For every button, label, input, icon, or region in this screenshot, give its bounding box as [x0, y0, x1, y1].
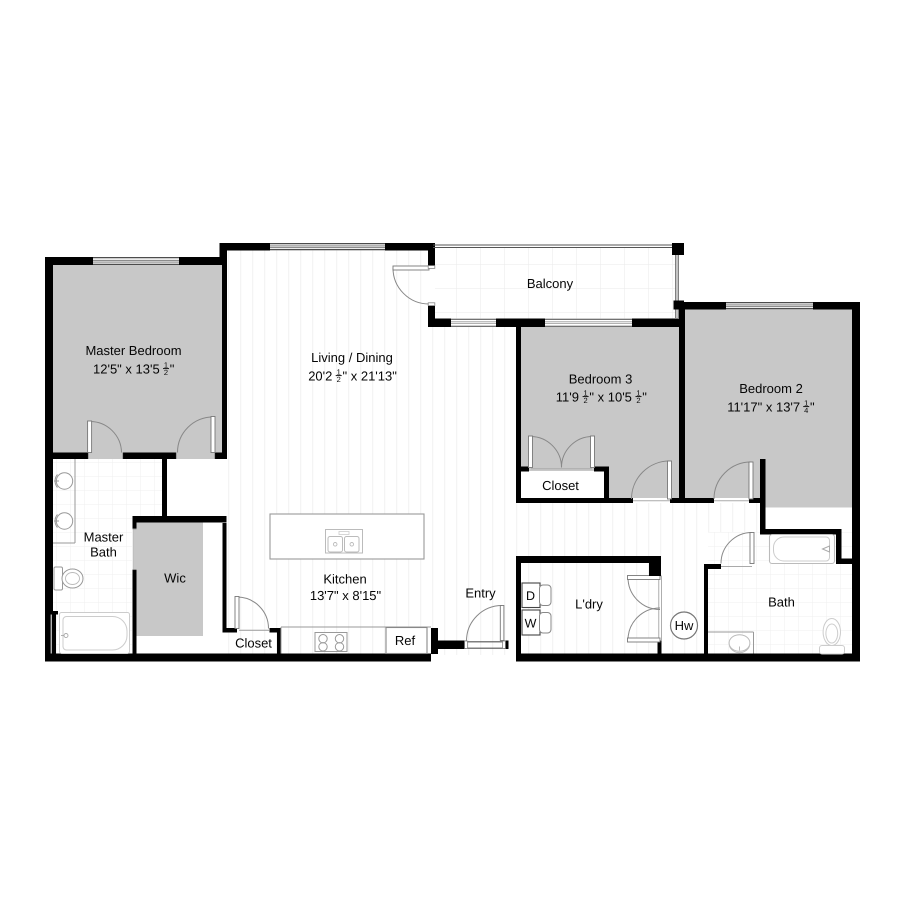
svg-text:" x 21'13": " x 21'13"	[343, 369, 398, 384]
svg-text:2: 2	[636, 396, 640, 405]
svg-text:D: D	[526, 589, 535, 603]
svg-text:Wic: Wic	[164, 571, 186, 586]
svg-text:Bath: Bath	[768, 595, 795, 610]
svg-text:Bath: Bath	[90, 545, 117, 560]
svg-text:Bedroom 3: Bedroom 3	[569, 372, 633, 387]
svg-text:Master: Master	[84, 530, 124, 545]
svg-text:Closet: Closet	[235, 636, 272, 651]
svg-text:2: 2	[584, 396, 588, 405]
svg-text:" x 10'5: " x 10'5	[589, 390, 632, 405]
svg-text:12'5" x 13'5: 12'5" x 13'5	[93, 362, 160, 377]
svg-text:Balcony: Balcony	[527, 276, 574, 291]
svg-text:20'2: 20'2	[308, 369, 332, 384]
svg-text:": "	[810, 400, 815, 415]
svg-text:11'17" x 13'7: 11'17" x 13'7	[727, 400, 800, 415]
svg-text:Living / Dining: Living / Dining	[311, 350, 393, 365]
svg-text:4: 4	[804, 406, 808, 415]
svg-text:Kitchen: Kitchen	[323, 572, 366, 587]
svg-text:Hw: Hw	[675, 618, 694, 633]
svg-text:13'7" x 8'15": 13'7" x 8'15"	[310, 588, 382, 603]
svg-text:2: 2	[337, 375, 341, 384]
svg-text:2: 2	[164, 368, 168, 377]
svg-text:L'dry: L'dry	[575, 597, 603, 612]
svg-text:": "	[642, 390, 647, 405]
svg-text:11'9: 11'9	[556, 390, 579, 405]
svg-text:Entry: Entry	[465, 586, 496, 601]
svg-text:Bedroom 2: Bedroom 2	[739, 381, 803, 396]
svg-text:Closet: Closet	[542, 478, 579, 493]
svg-text:": "	[170, 362, 175, 377]
svg-text:Ref: Ref	[395, 633, 416, 648]
svg-text:W: W	[525, 617, 537, 631]
svg-text:Master Bedroom: Master Bedroom	[85, 343, 181, 358]
